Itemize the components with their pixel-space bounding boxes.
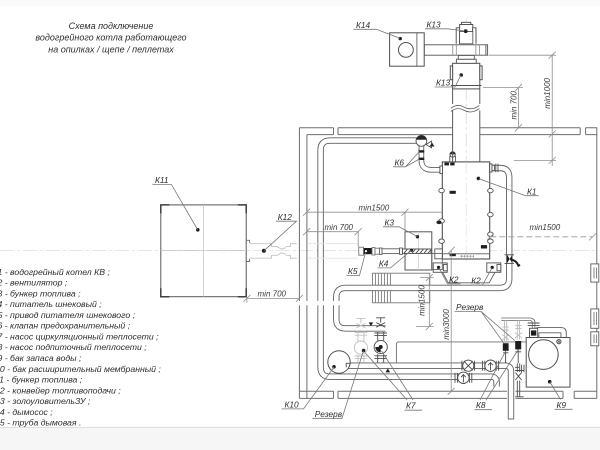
svg-text:К7: К7 — [406, 401, 416, 411]
svg-text:min 700: min 700 — [510, 90, 519, 119]
svg-text:min3000: min3000 — [442, 309, 451, 340]
svg-text:К14: К14 — [356, 20, 371, 30]
svg-text:13 - золоуловительЗУ ;: 13 - золоуловительЗУ ; — [0, 396, 91, 406]
svg-text:min 700: min 700 — [258, 290, 287, 299]
svg-text:К3: К3 — [385, 217, 395, 227]
svg-text:К2: К2 — [449, 274, 459, 284]
svg-text:min 700: min 700 — [325, 223, 354, 232]
svg-text:К11: К11 — [155, 175, 169, 185]
svg-text:К5: К5 — [348, 266, 358, 276]
svg-text:14 - дымосос ;: 14 - дымосос ; — [0, 407, 53, 417]
svg-text:Резерв: Резерв — [456, 302, 484, 312]
svg-text:К6: К6 — [395, 157, 405, 167]
svg-text:10 - бак расширительный мемб: 10 - бак расширительный мембранный ; — [0, 364, 161, 374]
svg-text:min1000: min1000 — [543, 77, 552, 108]
svg-text:min1500: min1500 — [417, 285, 426, 316]
svg-text:11 - бункер топлива ;: 11 - бункер топлива ; — [0, 375, 83, 385]
svg-text:1 - водогрейный котел КВ ;: 1 - водогрейный котел КВ ; — [0, 267, 110, 277]
svg-text:К13: К13 — [436, 78, 451, 88]
svg-text:15 - труба дымовая .: 15 - труба дымовая . — [0, 418, 81, 428]
svg-text:9 - бак запаса воды ;: 9 - бак запаса воды ; — [0, 353, 82, 363]
svg-text:4 - питатель шнековый ;: 4 - питатель шнековый ; — [0, 299, 102, 309]
svg-text:водогрейного котла работающе: водогрейного котла работающего — [35, 33, 186, 43]
svg-text:К13: К13 — [427, 19, 442, 29]
svg-text:Схема подключение: Схема подключение — [69, 21, 154, 31]
svg-text:К8: К8 — [476, 400, 486, 410]
svg-text:К12: К12 — [278, 212, 293, 222]
svg-text:7 - насос циркуляционный теп: 7 - насос циркуляционный теплосети ; — [0, 331, 159, 341]
svg-text:6 - клапан предохранительный: 6 - клапан предохранительный ; — [0, 321, 131, 331]
svg-text:3 - бункер топлива ;: 3 - бункер топлива ; — [0, 288, 81, 298]
svg-text:К10: К10 — [285, 399, 300, 409]
svg-text:min1500: min1500 — [530, 223, 561, 232]
svg-text:К1: К1 — [527, 186, 537, 196]
svg-text:min1500: min1500 — [359, 203, 390, 212]
svg-text:на опилках / щепе / пеллетах: на опилках / щепе / пеллетах — [48, 44, 174, 54]
svg-text:8 - насос подпиточный теплос: 8 - насос подпиточный теплосети ; — [0, 342, 147, 352]
svg-text:К2: К2 — [471, 276, 481, 286]
svg-text:Резерв: Резерв — [315, 409, 343, 419]
svg-text:К4: К4 — [379, 258, 389, 268]
svg-text:5 - привод питателя шнековог: 5 - привод питателя шнекового ; — [0, 310, 136, 320]
svg-text:12 - конвейер топливоподачи: 12 - конвейер топливоподачи ; — [0, 385, 121, 395]
svg-text:2 - вентилятор ;: 2 - вентилятор ; — [0, 278, 68, 288]
svg-text:К9: К9 — [557, 400, 567, 410]
